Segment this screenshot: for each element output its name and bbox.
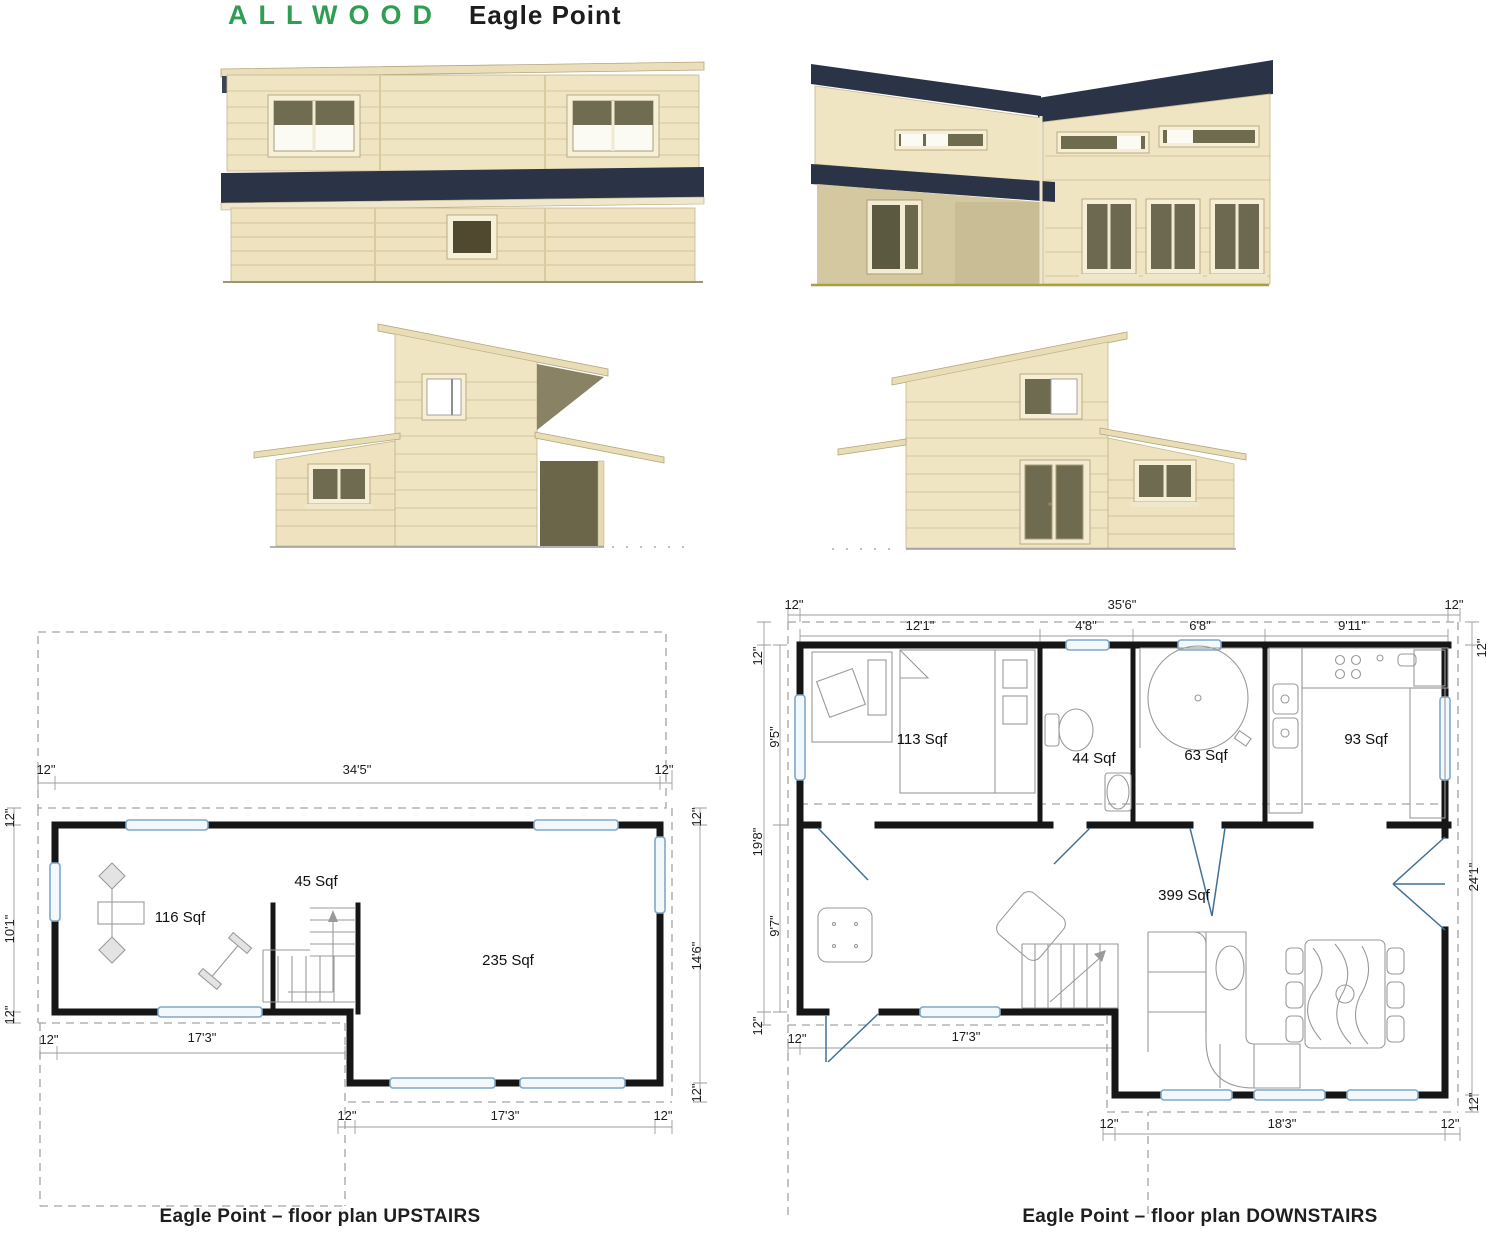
porch-shadow [955, 202, 1041, 284]
dim-label: 17'3" [491, 1108, 520, 1123]
dim-label: 4'8" [1075, 618, 1097, 633]
dim-label: 17'3" [952, 1029, 981, 1044]
dim-label: 12" [787, 1031, 806, 1046]
lower-window [447, 215, 497, 259]
porch-post [598, 461, 604, 546]
side-window [1131, 460, 1199, 507]
elevation-front-drawing [805, 52, 1275, 297]
upper-window-right [567, 95, 659, 157]
gym-equipment [98, 863, 252, 989]
dim-label: 12" [1474, 638, 1489, 657]
dim-label: 12" [1099, 1116, 1118, 1131]
downstairs-floorplan-drawing: 12" 35'6" 12" 12'1" 4'8" 6'8" 9'11" 12" … [750, 596, 1500, 1220]
dim-label: 9'5" [767, 726, 782, 748]
dim-label: 12" [750, 1016, 765, 1035]
room-area-label: 63 Sqf [1184, 747, 1228, 764]
dim-label: 12" [39, 1032, 58, 1047]
upstairs-walls [55, 825, 660, 1083]
dim-label: 17'3" [188, 1030, 217, 1045]
room-area-label: 93 Sqf [1344, 731, 1388, 748]
dim-label: 12" [337, 1108, 356, 1123]
clerestory-left [895, 130, 987, 150]
plan-sheet: ALLWOOD Eagle Point [0, 0, 1500, 1239]
elevation-rear-drawing [215, 55, 710, 287]
stair-walls [273, 905, 358, 1012]
upstairs-room-labels: 116 Sqf 45 Sqf 235 Sqf [155, 873, 535, 969]
dim-label: 34'5" [343, 762, 372, 777]
double-door [1020, 460, 1090, 544]
downstairs-roof-overhang-dashed [788, 622, 1460, 1220]
downstairs-windows [795, 640, 1450, 1100]
dim-label: 12'1" [906, 618, 935, 633]
brand-logo: ALLWOOD [228, 0, 443, 31]
left-side-elevation [254, 324, 692, 547]
loft-window [1020, 374, 1082, 419]
room-area-label: 116 Sqf [155, 909, 206, 926]
downstairs-doors [818, 828, 1445, 1062]
room-area-label: 399 Sqf [1158, 887, 1211, 904]
dim-label: 12" [689, 1083, 704, 1102]
downstairs-dimension-labels: 12" 35'6" 12" 12'1" 4'8" 6'8" 9'11" 12" … [750, 597, 1489, 1131]
dim-label: 12" [654, 762, 673, 777]
dim-label: 18'3" [1268, 1116, 1297, 1131]
dim-label: 12" [1444, 597, 1463, 612]
bedroom-furniture [812, 650, 1035, 793]
dim-label: 12" [784, 597, 803, 612]
dim-label: 12" [36, 762, 55, 777]
tall-window-1 [1079, 199, 1139, 279]
right-side-elevation [832, 332, 1246, 549]
porch-shadow-upper [537, 364, 604, 430]
porch-opening [540, 461, 598, 546]
loft-window [422, 374, 466, 420]
upper-window-left [268, 95, 360, 157]
elevation-left-drawing [252, 318, 700, 558]
dim-label: 6'8" [1189, 618, 1211, 633]
clerestory-right-1 [1057, 132, 1149, 153]
room-area-label: 235 Sqf [482, 952, 535, 969]
porch-roof [535, 432, 664, 463]
downstairs-caption: Eagle Point – floor plan DOWNSTAIRS [980, 1206, 1420, 1228]
living-furniture [818, 888, 1404, 1088]
dim-label: 12" [653, 1108, 672, 1123]
downstairs-room-labels: 113 Sqf 44 Sqf 63 Sqf 93 Sqf 399 Sqf [897, 731, 1389, 904]
dim-label: 19'8" [750, 827, 765, 856]
upstairs-floorplan-drawing: 12" 34'5" 12" 12" 10'1" 12" 12" 14'6" 12… [0, 596, 745, 1220]
rear-elevation [221, 62, 704, 282]
entry-door [867, 200, 922, 274]
downstairs-walls [800, 645, 1448, 1095]
bathroom-fixtures [1140, 646, 1262, 750]
dim-label: 10'1" [2, 914, 17, 943]
tall-wall [395, 334, 537, 546]
dim-label: 12" [2, 808, 17, 827]
porch-roof-slab [838, 439, 906, 455]
dim-label: 12" [1440, 1116, 1459, 1131]
clerestory-right-2 [1159, 126, 1259, 147]
header: ALLWOOD Eagle Point [228, 0, 622, 36]
dim-label: 35'6" [1108, 597, 1137, 612]
dim-label: 12" [2, 1005, 17, 1024]
dim-label: 12" [1466, 1092, 1481, 1111]
dim-label: 24'1" [1466, 862, 1481, 891]
staircase [263, 908, 356, 1002]
dim-label: 9'7" [767, 915, 782, 937]
dim-label: 14'6" [689, 941, 704, 970]
dim-label: 12" [689, 807, 704, 826]
dim-label: 12" [750, 646, 765, 665]
elevation-right-drawing [822, 318, 1268, 560]
side-window [305, 464, 373, 509]
upstairs-caption: Eagle Point – floor plan UPSTAIRS [95, 1206, 545, 1228]
page-title: Eagle Point [469, 0, 622, 31]
room-area-label: 45 Sqf [294, 873, 338, 890]
tall-window-3 [1207, 199, 1267, 279]
room-area-label: 44 Sqf [1072, 750, 1116, 767]
front-elevation [811, 60, 1273, 285]
dining-set [1286, 940, 1404, 1048]
dim-label: 9'11" [1338, 618, 1366, 633]
room-area-label: 113 Sqf [897, 731, 948, 748]
barbell [198, 933, 251, 990]
interior-walls [1040, 645, 1265, 825]
tall-window-2 [1143, 199, 1203, 279]
